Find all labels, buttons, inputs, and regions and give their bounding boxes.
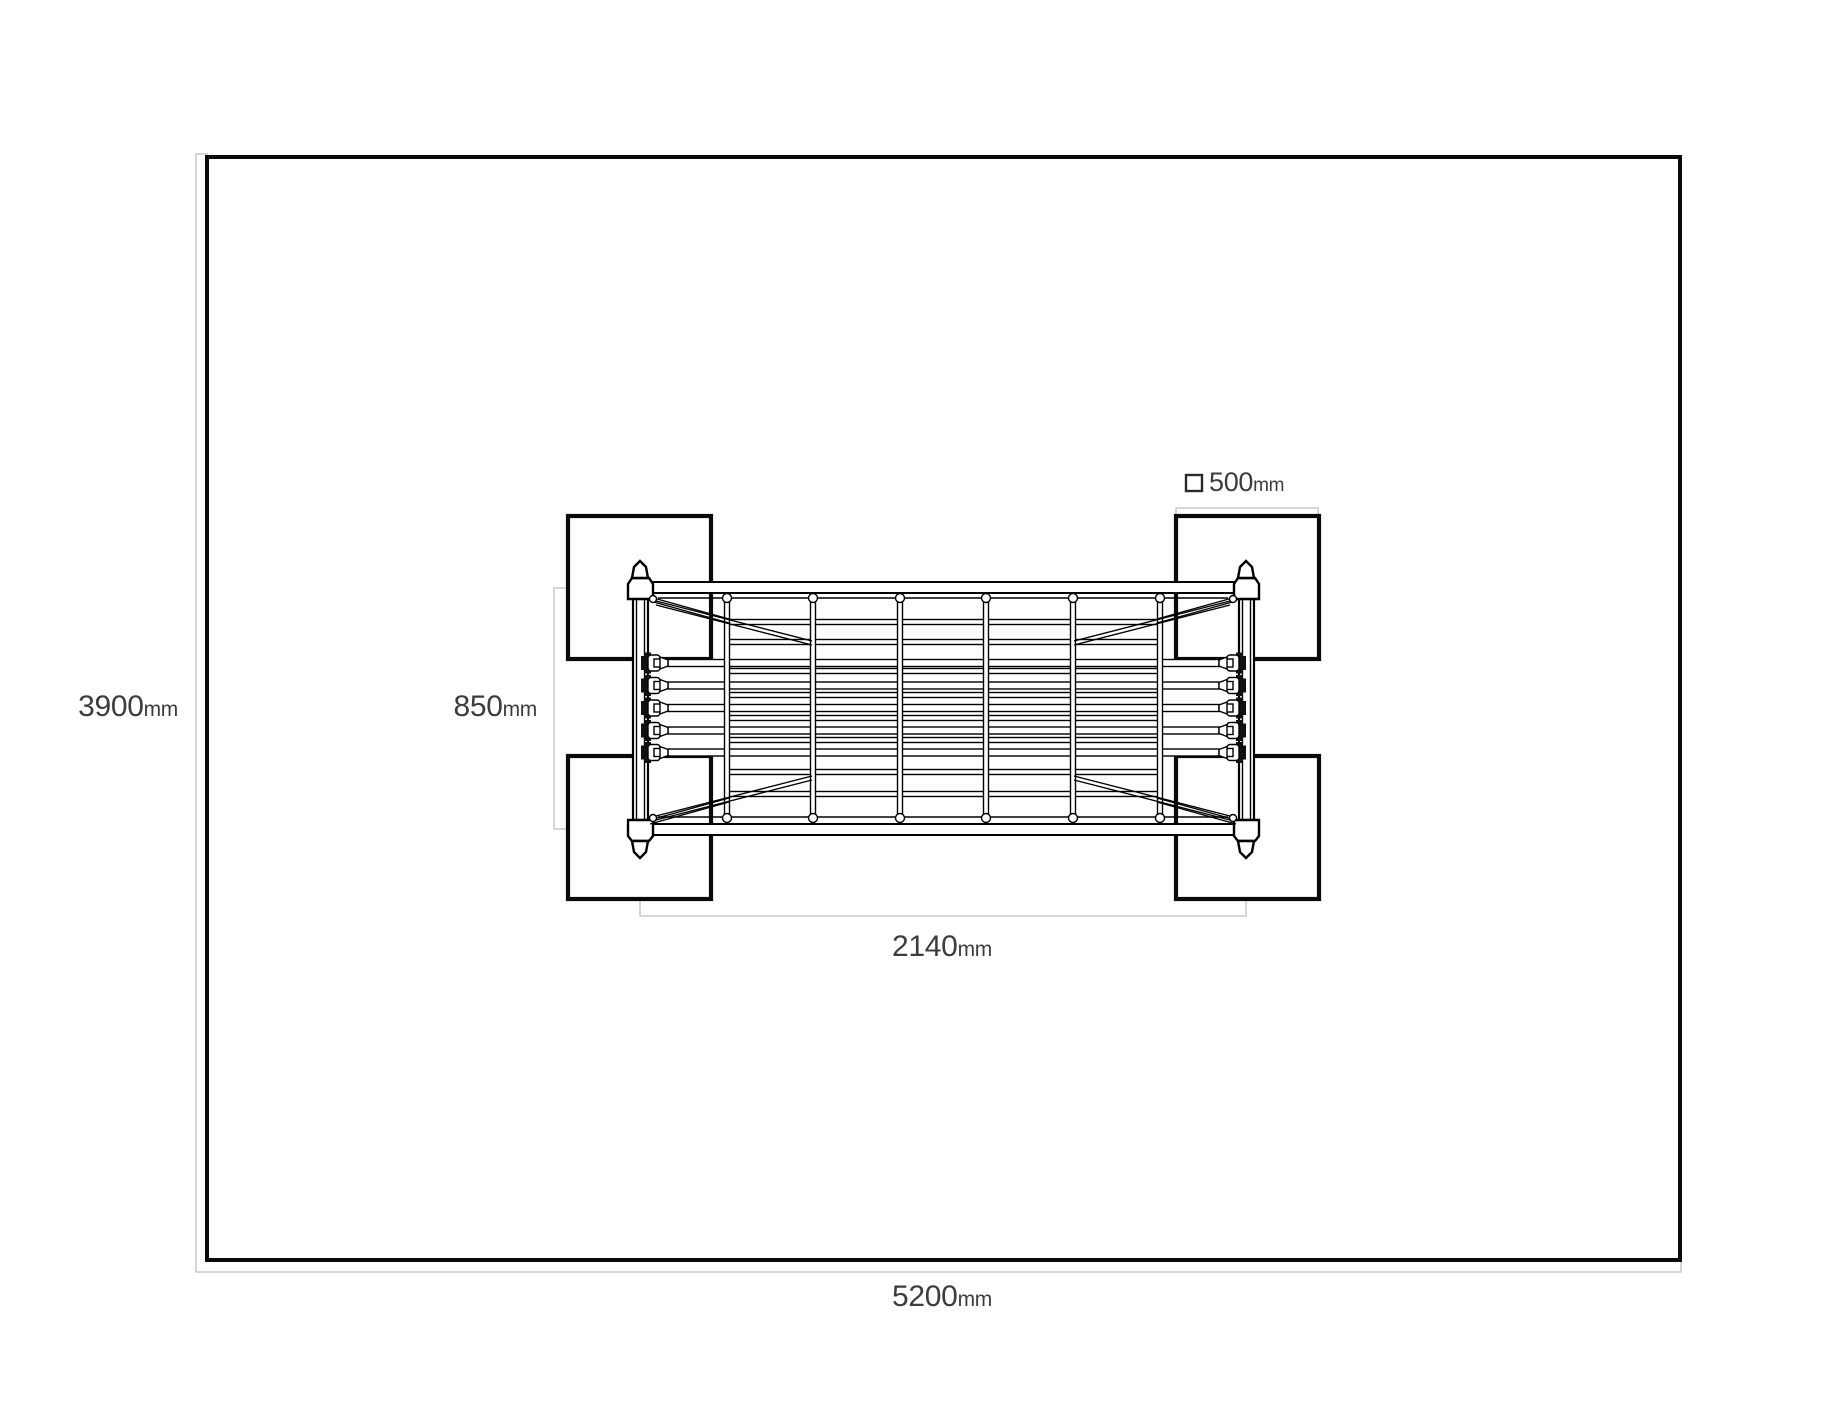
- dim-label-3900: 3900mm: [78, 690, 178, 723]
- bed-slat: [668, 682, 1219, 689]
- spring-clamp: [641, 720, 668, 741]
- bed-grid-row: [727, 792, 1160, 797]
- main-rail-top: [653, 582, 1234, 593]
- bed-grid-row: [727, 669, 1160, 674]
- bed-post: [811, 600, 816, 817]
- bed-grid-row: [727, 738, 1160, 743]
- bed-post-joint: [723, 594, 732, 603]
- right-bottom-hub: [1234, 820, 1259, 841]
- left-bottom-hub: [628, 820, 653, 841]
- bed-grid-row: [727, 716, 1160, 721]
- legend-square-icon: [1186, 475, 1202, 491]
- spring-clamps-left: [641, 653, 668, 764]
- bed-post-joint: [982, 594, 991, 603]
- bed-post-joint: [1069, 594, 1078, 603]
- brace-ring: [650, 596, 657, 603]
- bed-post-joint: [1156, 814, 1165, 823]
- dim-bracket-2140: [640, 900, 1246, 916]
- main-rail-bottom: [653, 824, 1234, 835]
- spring-clamp: [1219, 720, 1246, 741]
- brace-ring: [650, 815, 657, 822]
- bed-post-joint: [896, 594, 905, 603]
- bed-post-joint: [1156, 594, 1165, 603]
- dim-extension-left: [196, 154, 1681, 1272]
- brace-ring: [1230, 596, 1237, 603]
- bed-post-joint: [896, 814, 905, 823]
- bed-post: [725, 600, 730, 817]
- brace-ring: [1230, 815, 1237, 822]
- bed-post-joint: [723, 814, 732, 823]
- spring-clamp: [641, 698, 668, 719]
- bed-post-joint: [809, 814, 818, 823]
- bed-post: [1158, 600, 1163, 817]
- spring-clamp: [641, 675, 668, 696]
- dim-extension-lines: [196, 154, 1681, 1272]
- bed-grid-row: [727, 693, 1160, 698]
- floor-plan-drawing: 3900mm 850mm 2140mm 5200mm 500mm: [0, 0, 1843, 1417]
- spring-clamp: [1219, 675, 1246, 696]
- left-top-hub: [628, 578, 653, 599]
- spring-clamp: [1219, 698, 1246, 719]
- bed-post: [984, 600, 989, 817]
- bed-post-joint: [1069, 814, 1078, 823]
- bed-grid-row: [727, 770, 1160, 775]
- dim-label-850: 850mm: [453, 690, 537, 723]
- bed-slat: [668, 749, 1219, 756]
- dim-label-5200: 5200mm: [892, 1280, 992, 1313]
- right-top-hub: [1234, 578, 1259, 599]
- bed-post: [1071, 600, 1076, 817]
- legend-label-500: 500mm: [1209, 467, 1284, 497]
- apparatus-frame: [628, 561, 1259, 858]
- dim-label-2140: 2140mm: [892, 930, 992, 963]
- bed-slat: [668, 660, 1219, 667]
- bed-post: [898, 600, 903, 817]
- bed-slat: [668, 705, 1219, 712]
- bed-grid-row: [727, 620, 1160, 625]
- bed-slat: [668, 727, 1219, 734]
- spring-clamps-right: [1219, 653, 1246, 764]
- bed-post-joint: [982, 814, 991, 823]
- bed-post-joint: [809, 594, 818, 603]
